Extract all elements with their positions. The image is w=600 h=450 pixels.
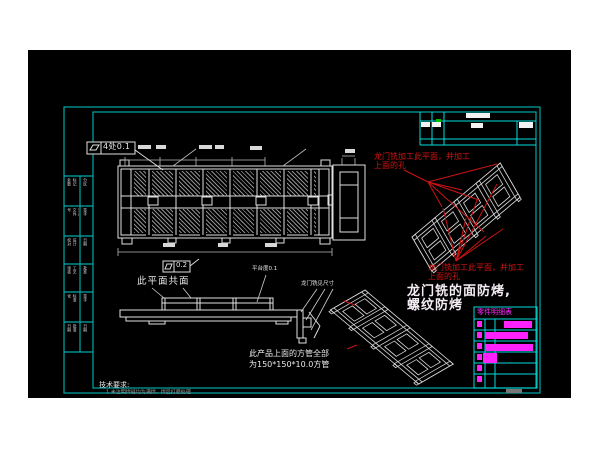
signature-cell: 批准 [82,266,92,290]
signature-cell: 签字 [82,208,92,234]
coplanar-note: 此平面共面 [137,277,190,287]
signature-cell: 设计校对 [66,238,79,262]
green-mark [436,119,441,122]
tube-note-line2: 为150*150*10.0方管 [249,361,329,369]
side-view [328,165,365,240]
red-note-top-line2: 上面的孔 [374,162,406,170]
parts-table-header: 零件明细表 [477,309,512,316]
signature-cell: 工艺审核 [66,266,79,290]
plan-mullions [121,169,329,236]
milling-note-line2: 螺纹防烤 [407,299,463,313]
fcf-small-value: 0.2 [176,262,187,269]
isometric-view-top [412,163,521,273]
fcf-main-value: 4处0.1 [103,143,130,151]
milling-note-line1: 龙门铣的面防烤, [407,285,511,299]
tech-req-title: 技术要求: [99,382,129,389]
signature-cell: 标记处数 [66,178,79,204]
signature-cell: 批准日期 [66,324,79,350]
platform-flatness-note: 平台度0.1 [252,266,277,272]
signature-cell: 日期 [82,238,92,262]
bottom-gray-mark [506,389,522,393]
elevation-view [120,298,320,343]
signature-cell: 日期 [82,324,92,350]
gantry-dim-note: 龙门铣见尺寸 [301,281,334,287]
page-background: 4处0.1 0.2 此平面共面 平台度0.1 龙门铣见尺寸 龙门铣加工此平面，并… [0,0,600,450]
signature-cell: 分区 [82,178,92,204]
tech-req-item1: 1.未注明焊缝均为满焊，焊后打磨处理 [106,390,191,395]
signature-cell: 更改文件号 [66,208,79,234]
tube-note-line1: 此产品上面的方管全部 [249,350,329,358]
signature-cell: 标准化 [66,294,79,320]
signature-cell: 签字 [82,294,92,320]
red-note-bottom-line2: 上面的孔 [428,273,460,281]
